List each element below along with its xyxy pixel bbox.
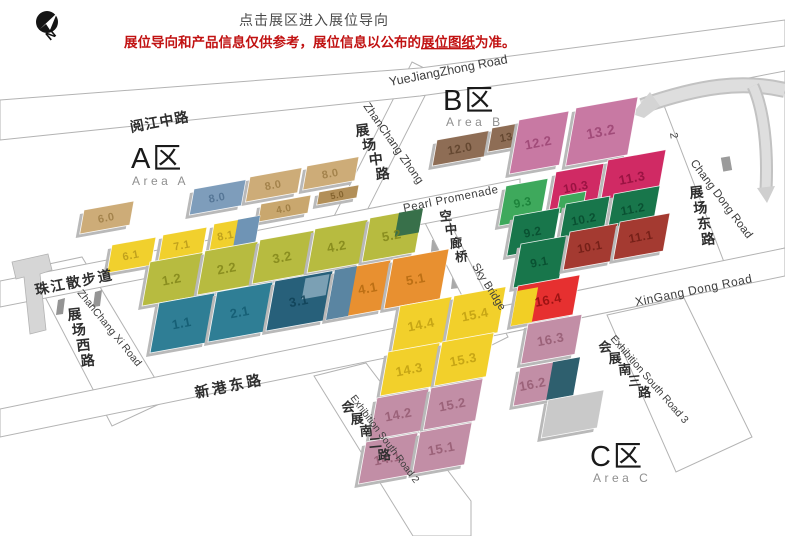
disclaimer-suffix: 为准。 <box>475 34 516 50</box>
click-hint: 点击展区进入展位导向 <box>239 12 389 28</box>
area-a-subtitle: Area A <box>132 174 189 188</box>
disclaimer-link[interactable]: 展位图纸 <box>421 34 475 50</box>
area-a-title[interactable]: A区 <box>131 143 183 175</box>
notices: 点击展区进入展位导向 展位导向和产品信息仅供参考，展位信息以公布的展位图纸为准。 <box>124 12 516 50</box>
venue-map: 6.08.08.08.04.05.06.17.18.11.22.23.24.25… <box>0 0 785 536</box>
hall-8-0[interactable]: 8.0 <box>185 180 246 219</box>
venue-map-page: 6.08.08.08.04.05.06.17.18.11.22.23.24.25… <box>0 0 785 536</box>
area-c[interactable]: C区 Area C <box>590 441 651 485</box>
area-c-subtitle: Area C <box>593 471 651 485</box>
disclaimer: 展位导向和产品信息仅供参考，展位信息以公布的展位图纸为准。 <box>124 34 516 50</box>
hall-12-2[interactable]: 12.2 <box>505 111 569 178</box>
area-b-subtitle: Area B <box>446 115 504 129</box>
area-b-title[interactable]: B区 <box>443 85 495 117</box>
disclaimer-prefix: 展位导向和产品信息仅供参考，展位信息以公布的 <box>124 34 421 50</box>
area-a[interactable]: A区 Area A <box>131 143 189 188</box>
area-b[interactable]: B区 Area B <box>443 85 504 129</box>
compass: N <box>36 11 59 43</box>
hall-6-0[interactable]: 6.0 <box>76 201 134 238</box>
area-c-title[interactable]: C区 <box>590 441 644 473</box>
hall-12-0[interactable]: 12.0 <box>428 131 489 170</box>
